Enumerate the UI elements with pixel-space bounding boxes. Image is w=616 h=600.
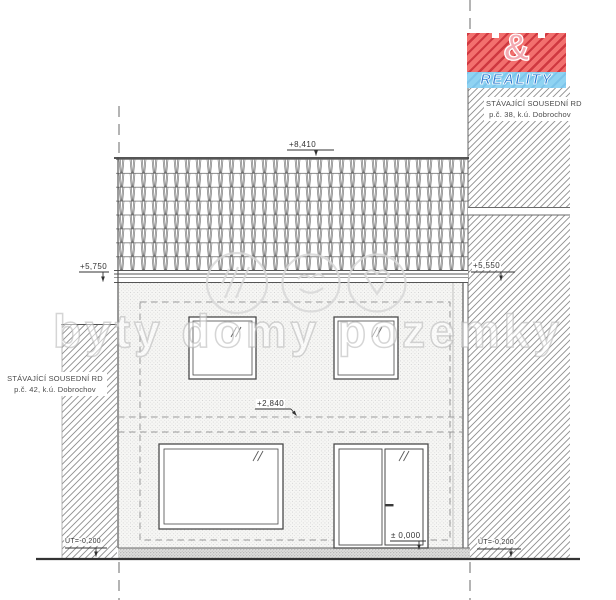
logo-brand-text: REALITY xyxy=(467,72,566,88)
neighbor-right-label: STÁVAJÍCÍ SOUSEDNÍ RD p.č. 38, k.ú. Dobr… xyxy=(484,97,576,121)
window-upper-right xyxy=(334,317,398,379)
gutter xyxy=(114,270,468,283)
level-upper-floor: +2,840 xyxy=(256,399,285,408)
terrain-level-right: ÚT=-0,200 xyxy=(477,539,515,547)
level-ridge: +8,410 xyxy=(288,140,317,149)
level-neighbor-eaves: +5,550 xyxy=(472,261,501,270)
terrain-level-left: ÚT=-0,200 xyxy=(64,538,102,546)
level-eaves: +5,750 xyxy=(79,262,108,271)
agency-logo: & REALITY xyxy=(467,33,566,88)
door-sidelight xyxy=(339,449,382,545)
neighbor-left-line2: p.č. 42, k.ú. Dobrochov xyxy=(5,384,105,395)
window-upper-left xyxy=(189,317,256,379)
neighbor-right-line1: STÁVAJÍCÍ SOUSEDNÍ RD xyxy=(486,98,574,109)
window-ground-floor xyxy=(159,444,283,529)
drawing-linework xyxy=(0,0,616,600)
neighbor-right-line2: p.č. 38, k.ú. Dobrochov xyxy=(486,109,574,120)
elevation-drawing: byty domy pozemky & REALITY +8,410 +5,75… xyxy=(0,0,616,600)
neighbor-building-right xyxy=(468,86,570,559)
level-ground-floor: ± 0,000 xyxy=(390,531,421,540)
plinth xyxy=(118,548,470,559)
roof xyxy=(114,158,469,283)
neighbor-left-label: STÁVAJÍCÍ SOUSEDNÍ RD p.č. 42, k.ú. Dobr… xyxy=(3,372,107,396)
door-handle xyxy=(386,504,394,506)
neighbor-building-left xyxy=(61,325,117,560)
logo-ampersand: & xyxy=(467,27,566,69)
neighbor-left-line1: STÁVAJÍCÍ SOUSEDNÍ RD xyxy=(5,373,105,384)
